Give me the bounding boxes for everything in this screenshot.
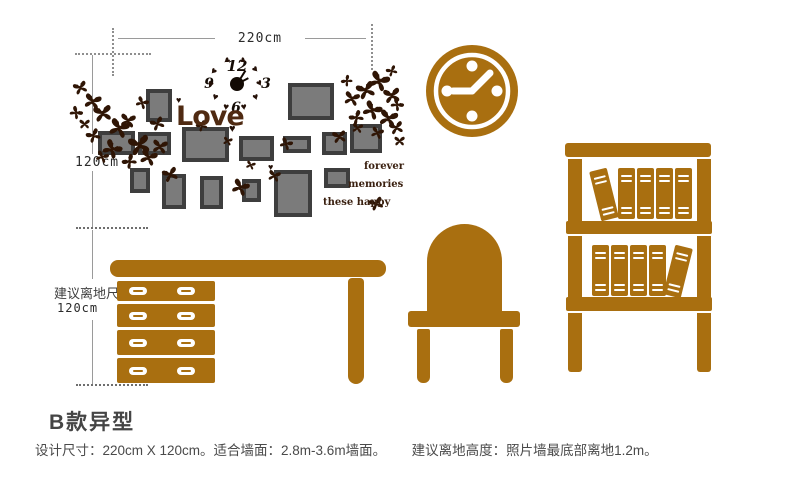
shelf-bar (566, 297, 712, 311)
book-spine (618, 168, 635, 219)
book-spine (592, 245, 609, 296)
heart-icon: ♥ (251, 93, 260, 104)
desk-drawer (117, 304, 215, 327)
drawer-handle-icon (129, 339, 147, 347)
dim-top-right-tick (371, 24, 373, 70)
dim-top-line-left (118, 38, 215, 39)
drawer-handle-icon (129, 367, 147, 375)
word-these-happy: these happy (323, 197, 390, 208)
drawer-handle-icon (129, 287, 147, 295)
dim-left-bottom-tick (76, 227, 148, 229)
book-spine (611, 245, 628, 296)
spec-line-2: 建议离地高度：照片墙最底部离地1.2m。 (412, 443, 658, 458)
book-spine (630, 245, 647, 296)
drawer-handle-icon (177, 287, 195, 295)
dim-left-top-tick (75, 53, 151, 55)
shelf-bar (566, 221, 712, 234)
dim-floor-bottom-tick (76, 384, 148, 386)
butterfly-icon (387, 118, 405, 136)
shelf-leg (697, 313, 711, 372)
dim-top-label: 220cm (215, 31, 305, 46)
butterfly-icon (351, 121, 364, 134)
desk-leg (348, 278, 364, 384)
butterfly-icon (222, 135, 234, 147)
butterfly-icon (394, 135, 405, 146)
desk-top (110, 260, 386, 277)
shelf-bar (565, 143, 711, 157)
style-title: B款异型 (49, 406, 135, 436)
heart-icon: ♥ (208, 66, 219, 77)
book-spine (637, 168, 654, 219)
drawer-handle-icon (177, 312, 195, 320)
love-text: Love (176, 101, 244, 132)
chair-seat (408, 311, 520, 327)
shelf-leg (568, 313, 582, 372)
drawer-handle-icon (177, 339, 195, 347)
butterfly-icon (79, 118, 90, 129)
dim-floor-line-b (92, 320, 93, 384)
spec-line: 设计尺寸：220cm X 120cm。适合墙面：2.8m-3.6m墙面。 建议离… (35, 439, 658, 459)
book-spine (656, 168, 673, 219)
butterfly-icon (119, 111, 138, 130)
heart-icon: ♥ (250, 64, 261, 75)
butterfly-icon (331, 128, 348, 145)
wall-clock-icon (426, 45, 518, 137)
dim-left-line-b (92, 171, 93, 227)
photo-frame (130, 168, 150, 193)
butterfly-icon (245, 159, 257, 171)
product-image: 220cm 120cm 建议离地尺寸 120cm Love ♥ ♥ ♥ 12 9… (0, 0, 790, 479)
chair-back (427, 224, 502, 311)
dim-top-left-tick (112, 28, 114, 76)
photo-frame (200, 176, 223, 209)
word-memories: memories (348, 179, 403, 190)
spec-line-1: 设计尺寸：220cm X 120cm。适合墙面：2.8m-3.6m墙面。 (35, 443, 386, 458)
drawer-handle-icon (177, 367, 195, 375)
drawer-handle-icon (129, 312, 147, 320)
floor-offset-value: 120cm (57, 301, 98, 315)
photo-frame (324, 168, 350, 188)
shelf-post (697, 159, 711, 223)
photo-frame (288, 83, 334, 120)
word-forever: forever (364, 161, 404, 172)
dim-floor-line-a (92, 230, 93, 279)
heart-icon: ♥ (268, 163, 273, 172)
book-spine (675, 168, 692, 219)
chair-leg (500, 329, 513, 383)
desk-drawer (117, 358, 215, 383)
butterfly-icon (151, 137, 170, 156)
book-spine (589, 168, 619, 222)
desk-drawer (117, 281, 215, 301)
chair-leg (417, 329, 430, 383)
photo-frame (182, 127, 229, 162)
book-spine (663, 245, 693, 299)
shelf-post (568, 159, 582, 223)
desk-drawer (117, 330, 215, 355)
dim-top-line-right (305, 38, 366, 39)
butterfly-icon (339, 73, 355, 89)
photo-frame (239, 136, 274, 161)
shelf-post (697, 236, 711, 299)
shelf-post (568, 236, 582, 299)
